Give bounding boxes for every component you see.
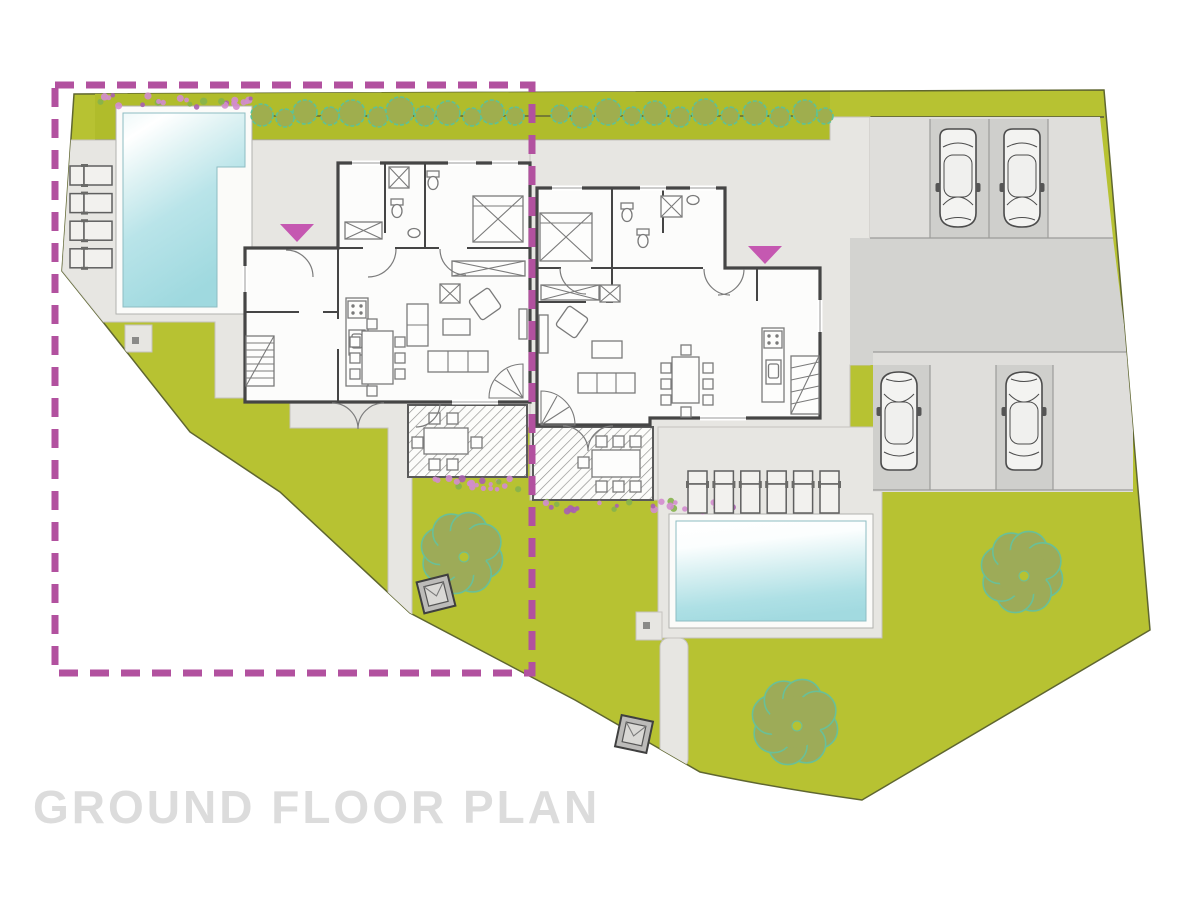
hedge-bush-icon xyxy=(339,100,365,126)
hedge-bush-icon xyxy=(415,106,435,126)
utility-box-icon xyxy=(417,575,456,614)
hedge-bush-icon xyxy=(770,107,790,127)
hedge-bush-icon xyxy=(793,100,817,124)
hedge-bush-icon xyxy=(386,97,414,125)
stairs-icon xyxy=(791,356,819,414)
sun-lounger-icon xyxy=(792,471,815,513)
flower-icon xyxy=(575,506,580,511)
site-plan-page: GROUND FLOOR PLAN xyxy=(0,0,1200,900)
hedge-bush-icon xyxy=(643,101,667,125)
flower-icon xyxy=(200,98,207,105)
pool-2-water xyxy=(676,521,866,621)
hedge-bush-icon xyxy=(692,99,718,125)
hedge-bush-icon xyxy=(321,107,339,125)
sun-lounger-icon xyxy=(70,192,112,215)
stairs-icon xyxy=(246,336,274,386)
bed-icon xyxy=(540,213,592,261)
car-icon xyxy=(877,372,922,470)
flower-icon xyxy=(495,487,500,492)
garden-path xyxy=(660,638,688,768)
hedge-bush-icon xyxy=(463,108,481,126)
page-title: GROUND FLOOR PLAN xyxy=(33,780,600,834)
sun-lounger-icon xyxy=(686,471,709,513)
flower-icon xyxy=(481,486,486,491)
pool-1 xyxy=(116,106,252,314)
hedge-bush-icon xyxy=(506,107,524,125)
flower-icon xyxy=(515,486,521,492)
sun-lounger-icon xyxy=(818,471,841,513)
flower-icon xyxy=(156,99,161,104)
flower-icon xyxy=(554,502,560,508)
sun-lounger-icon xyxy=(712,471,735,513)
sun-lounger-icon xyxy=(70,247,112,270)
flower-icon xyxy=(611,507,616,512)
hedge-bush-icon xyxy=(293,100,317,124)
hedge-bush-icon xyxy=(817,108,833,124)
flower-icon xyxy=(101,93,108,100)
driveway xyxy=(850,238,1128,365)
flower-icon xyxy=(673,500,678,505)
flower-icon xyxy=(454,479,460,485)
sun-lounger-icon xyxy=(70,219,112,242)
hedge-bush-icon xyxy=(743,101,767,125)
flower-icon xyxy=(160,100,165,105)
flower-icon xyxy=(651,504,656,509)
flower-icon xyxy=(144,92,151,99)
flower-icon xyxy=(682,506,687,511)
flower-icon xyxy=(244,100,248,104)
car-icon xyxy=(1000,129,1045,227)
sun-lounger-icon xyxy=(70,164,112,187)
hedge-bush-icon xyxy=(436,101,460,125)
flower-icon xyxy=(667,502,674,509)
flower-icon xyxy=(435,477,441,483)
hedge-bush-icon xyxy=(670,107,690,127)
flower-icon xyxy=(543,500,549,506)
patio-2 xyxy=(533,427,653,500)
flower-icon xyxy=(506,476,513,483)
flower-icon xyxy=(489,482,493,486)
flower-icon xyxy=(496,479,501,484)
flower-icon xyxy=(187,102,192,107)
flower-icon xyxy=(233,103,240,110)
hedge-bush-icon xyxy=(623,107,641,125)
sun-lounger-icon xyxy=(739,471,762,513)
flower-icon xyxy=(549,505,554,510)
flower-icon xyxy=(177,95,184,102)
flower-icon xyxy=(626,499,632,505)
flower-icon xyxy=(115,102,122,109)
flower-icon xyxy=(231,97,238,104)
hedge-bush-icon xyxy=(595,99,621,125)
flower-icon xyxy=(488,486,493,491)
flower-icon xyxy=(502,483,508,489)
flower-icon xyxy=(597,501,602,506)
flower-icon xyxy=(469,484,475,490)
car-icon xyxy=(936,129,981,227)
hedge-bush-icon xyxy=(368,107,388,127)
flower-icon xyxy=(194,104,200,110)
flower-icon xyxy=(249,96,253,100)
utility-box-icon xyxy=(615,715,653,753)
hedge-bush-icon xyxy=(276,109,294,127)
bed-icon xyxy=(473,196,523,242)
flower-icon xyxy=(218,98,225,105)
flower-icon xyxy=(140,102,145,107)
flower-icon xyxy=(184,98,189,103)
pool-2 xyxy=(669,514,873,628)
site-plan-drawing xyxy=(0,0,1200,900)
flower-icon xyxy=(111,93,116,98)
flower-icon xyxy=(658,499,664,505)
hedge-bush-icon xyxy=(480,100,504,124)
sun-lounger-icon xyxy=(765,471,788,513)
hedge-bush-icon xyxy=(551,105,569,123)
patio-1 xyxy=(408,405,527,477)
hedge-bush-icon xyxy=(251,104,273,126)
hedge-bush-icon xyxy=(721,107,739,125)
hedge-bush-icon xyxy=(571,106,593,128)
car-icon xyxy=(1002,372,1047,470)
flower-icon xyxy=(446,475,453,482)
flower-icon xyxy=(479,478,486,485)
flower-icon xyxy=(567,505,574,512)
